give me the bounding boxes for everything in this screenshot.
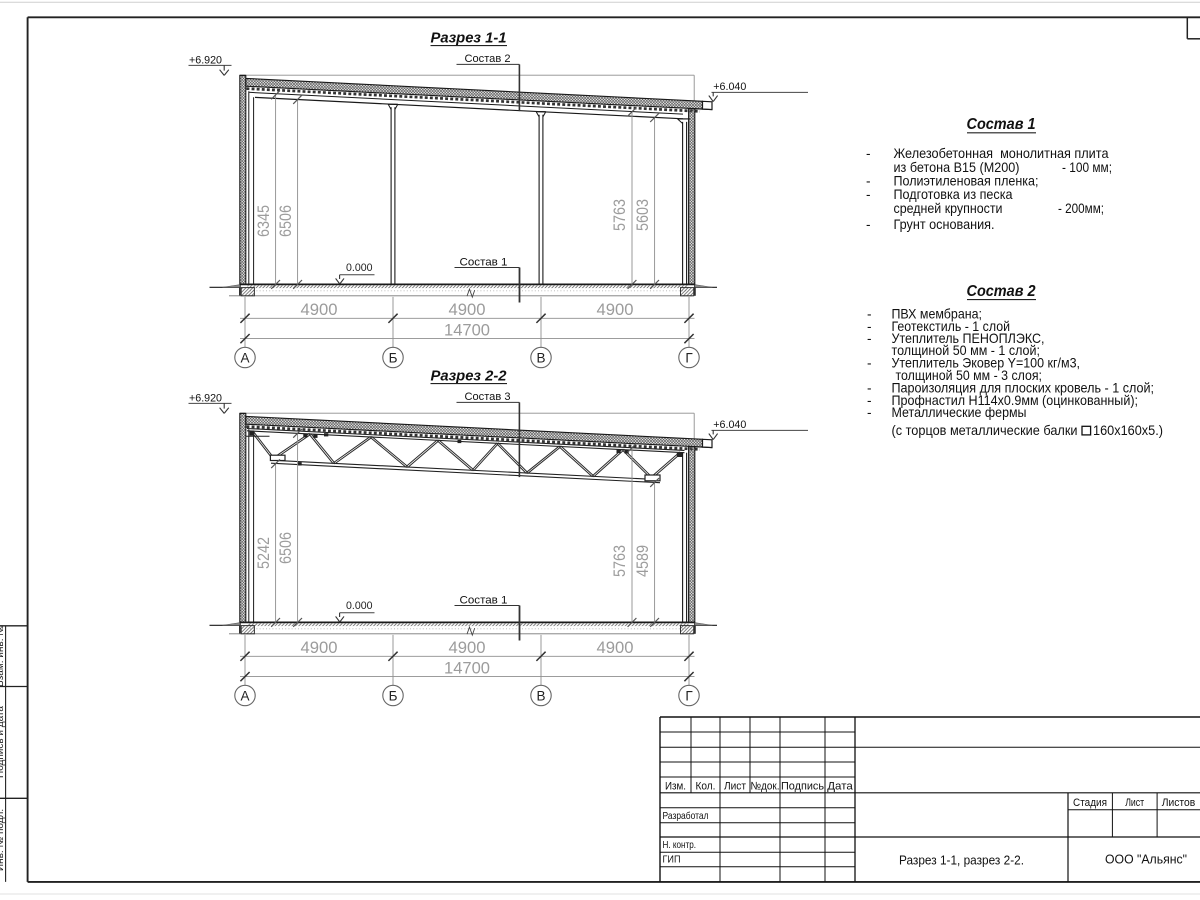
svg-text:-: - bbox=[867, 405, 872, 420]
svg-text:Инв. № подл.: Инв. № подл. bbox=[0, 809, 6, 871]
svg-text:4900: 4900 bbox=[449, 639, 486, 657]
svg-text:Н. контр.: Н. контр. bbox=[663, 839, 697, 851]
svg-text:14700: 14700 bbox=[444, 659, 490, 677]
svg-text:В: В bbox=[536, 350, 545, 365]
svg-text:-: - bbox=[866, 187, 871, 202]
svg-text:+6.040: +6.040 bbox=[713, 419, 746, 431]
svg-text:160х160х5.): 160х160х5.) bbox=[1093, 423, 1163, 438]
svg-text:Состав 3: Состав 3 bbox=[465, 391, 511, 403]
svg-text:Стадия: Стадия bbox=[1073, 797, 1107, 809]
svg-text:Подпись: Подпись bbox=[781, 780, 824, 792]
svg-text:+6.920: +6.920 bbox=[189, 54, 222, 66]
svg-text:14700: 14700 bbox=[444, 321, 490, 339]
svg-text:5763: 5763 bbox=[611, 199, 629, 231]
svg-text:Изм.: Изм. bbox=[665, 780, 686, 792]
svg-text:5242: 5242 bbox=[255, 537, 273, 569]
svg-text:- 200мм;: - 200мм; bbox=[1058, 201, 1104, 216]
svg-text:Разрез 1-1, разрез 2-2.: Разрез 1-1, разрез 2-2. bbox=[899, 853, 1024, 867]
svg-text:Б: Б bbox=[389, 350, 398, 365]
svg-text:Разработал: Разработал bbox=[663, 810, 709, 822]
svg-text:Кол.: Кол. bbox=[696, 780, 716, 792]
svg-text:4900: 4900 bbox=[597, 301, 634, 319]
svg-text:Железобетонная монолитная пли: Железобетонная монолитная плита bbox=[894, 146, 1109, 161]
svg-text:Дата: Дата bbox=[827, 780, 853, 792]
svg-text:Состав 2: Состав 2 bbox=[465, 53, 511, 65]
svg-text:Состав 1: Состав 1 bbox=[460, 594, 508, 606]
svg-text:4900: 4900 bbox=[449, 301, 486, 319]
svg-text:4900: 4900 bbox=[597, 639, 634, 657]
svg-text:6506: 6506 bbox=[277, 532, 295, 564]
svg-text:Состав 1: Состав 1 bbox=[967, 116, 1036, 133]
svg-text:5763: 5763 bbox=[611, 545, 629, 577]
svg-text:-: - bbox=[867, 356, 872, 371]
svg-text:№док.: №док. bbox=[751, 780, 780, 792]
svg-text:+6.040: +6.040 bbox=[713, 81, 746, 93]
svg-text:-: - bbox=[867, 331, 872, 346]
svg-text:средней крупности: средней крупности bbox=[894, 201, 1003, 216]
svg-text:(с торцов металлические балки: (с торцов металлические балки bbox=[892, 423, 1078, 438]
svg-text:Разрез 1-1: Разрез 1-1 bbox=[431, 30, 507, 47]
svg-text:Г: Г bbox=[685, 350, 693, 365]
svg-text:4589: 4589 bbox=[634, 545, 652, 577]
svg-text:4900: 4900 bbox=[301, 301, 338, 319]
svg-text:Разрез 2-2: Разрез 2-2 bbox=[431, 368, 508, 385]
svg-text:Состав 2: Состав 2 bbox=[967, 283, 1036, 300]
svg-text:+6.920: +6.920 bbox=[189, 392, 222, 404]
svg-text:0.000: 0.000 bbox=[346, 600, 373, 612]
svg-text:- 100 мм;: - 100 мм; bbox=[1062, 160, 1112, 175]
svg-text:Б: Б bbox=[389, 688, 398, 703]
svg-text:Состав 1: Состав 1 bbox=[460, 256, 508, 268]
svg-text:Листов: Листов bbox=[1162, 797, 1196, 809]
svg-text:А: А bbox=[240, 350, 249, 365]
svg-text:ООО "Альянс": ООО "Альянс" bbox=[1105, 852, 1187, 867]
svg-text:-: - bbox=[866, 217, 871, 232]
svg-text:В: В bbox=[536, 688, 545, 703]
svg-text:А: А bbox=[240, 688, 249, 703]
svg-text:0.000: 0.000 bbox=[346, 262, 373, 274]
svg-text:Грунт основания.: Грунт основания. bbox=[894, 217, 995, 232]
svg-text:Подготовка из песка: Подготовка из песка bbox=[894, 187, 1013, 202]
svg-text:-: - bbox=[866, 146, 871, 161]
svg-text:4900: 4900 bbox=[301, 639, 338, 657]
svg-text:Металлические фермы: Металлические фермы bbox=[892, 405, 1027, 420]
svg-text:Лист: Лист bbox=[1125, 797, 1144, 809]
svg-text:5603: 5603 bbox=[634, 199, 652, 231]
svg-text:Г: Г bbox=[685, 688, 693, 703]
svg-text:Взам. инв. №: Взам. инв. № bbox=[0, 625, 6, 687]
svg-text:Подпись и дата: Подпись и дата bbox=[0, 706, 6, 778]
svg-text:6506: 6506 bbox=[277, 205, 295, 237]
svg-text:ГИП: ГИП bbox=[663, 854, 681, 866]
svg-text:6345: 6345 bbox=[255, 205, 273, 237]
svg-text:Лист: Лист bbox=[724, 780, 746, 792]
